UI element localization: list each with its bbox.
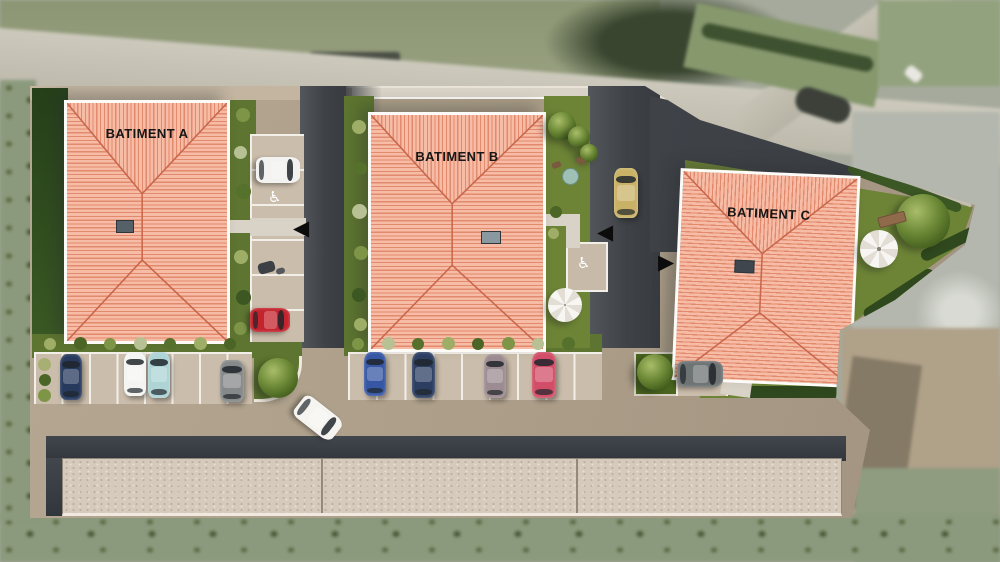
shrub: [74, 337, 87, 350]
walkway-a: [230, 220, 252, 233]
shrub: [352, 120, 366, 134]
parked-car-white-a: [256, 157, 300, 183]
shrub: [194, 337, 207, 350]
shrub: [234, 250, 248, 264]
hedge-south-of-c: [742, 386, 838, 398]
building-a-label: BATIMENT A: [67, 127, 227, 140]
aerial-grove-south: [0, 514, 1000, 562]
direction-arrow-left-icon: ◀: [597, 222, 613, 243]
shrub: [164, 338, 176, 350]
shrub: [442, 337, 455, 350]
shrub: [234, 322, 247, 335]
parked-car-teal: [148, 352, 170, 398]
shrub: [472, 338, 484, 350]
parasol: [548, 288, 582, 322]
moving-car-gold: [614, 168, 638, 218]
shrub: [236, 184, 251, 199]
shrub: [548, 228, 559, 239]
shrub: [104, 338, 116, 350]
parked-car-dark-blue: [412, 352, 435, 398]
direction-arrow-left-icon: ◀: [293, 218, 309, 239]
shrub: [236, 108, 250, 122]
walkway-b-vertical: [566, 214, 580, 248]
parked-car-white: [124, 352, 146, 396]
shrub: [352, 288, 366, 302]
shrub: [234, 146, 247, 159]
shrub: [354, 318, 367, 331]
building-c: BATIMENT C: [671, 168, 860, 388]
parked-car-dark-gray: [677, 361, 723, 387]
shrub: [38, 389, 51, 402]
aerial-grass-northeast: [878, 0, 1000, 86]
parking-row-center: [348, 352, 602, 400]
parked-car-pink: [532, 352, 556, 398]
direction-arrow-right-icon: ▶: [658, 252, 674, 273]
parked-car-mauve: [484, 354, 506, 398]
garage-divider: [321, 459, 323, 513]
shrub: [44, 338, 56, 350]
shrub: [352, 204, 367, 219]
site-plan-canvas: BATIMENT A BATIMENT B BATIMENT C: [0, 0, 1000, 562]
shrub: [354, 246, 368, 260]
handicap-icon: ♿: [577, 256, 590, 271]
skylight: [116, 220, 134, 233]
shrub: [224, 338, 236, 350]
building-b: BATIMENT B: [368, 112, 546, 352]
garage-divider: [576, 459, 578, 513]
skylight: [481, 231, 501, 244]
shrub: [502, 337, 515, 350]
shrub: [134, 337, 147, 350]
shrub: [39, 374, 51, 386]
shrub: [354, 162, 367, 175]
north-pavement: [30, 86, 300, 100]
shrub: [532, 338, 544, 350]
building-b-label: BATIMENT B: [371, 150, 543, 163]
shrub: [412, 338, 424, 350]
parasol-pole: [877, 247, 880, 250]
parked-car-red: [250, 308, 290, 332]
shrub: [562, 337, 575, 350]
shrub: [382, 337, 395, 350]
building-a: BATIMENT A: [64, 100, 230, 344]
tree: [258, 358, 298, 398]
shrub: [236, 290, 251, 305]
garden-table: [562, 168, 579, 185]
parked-car-navy: [60, 354, 82, 400]
parasol: [860, 230, 898, 268]
skylight: [734, 260, 755, 274]
parked-car-blue: [364, 352, 386, 396]
parasol-pole: [564, 304, 567, 307]
hedge-west-of-a: [32, 88, 68, 346]
parked-car-gray: [220, 360, 244, 402]
garage-block: [62, 458, 842, 516]
tree: [637, 354, 673, 390]
shrub: [38, 358, 51, 371]
shrub: [352, 338, 364, 350]
shrub: [550, 206, 562, 218]
handicap-icon: ♿: [268, 190, 281, 205]
